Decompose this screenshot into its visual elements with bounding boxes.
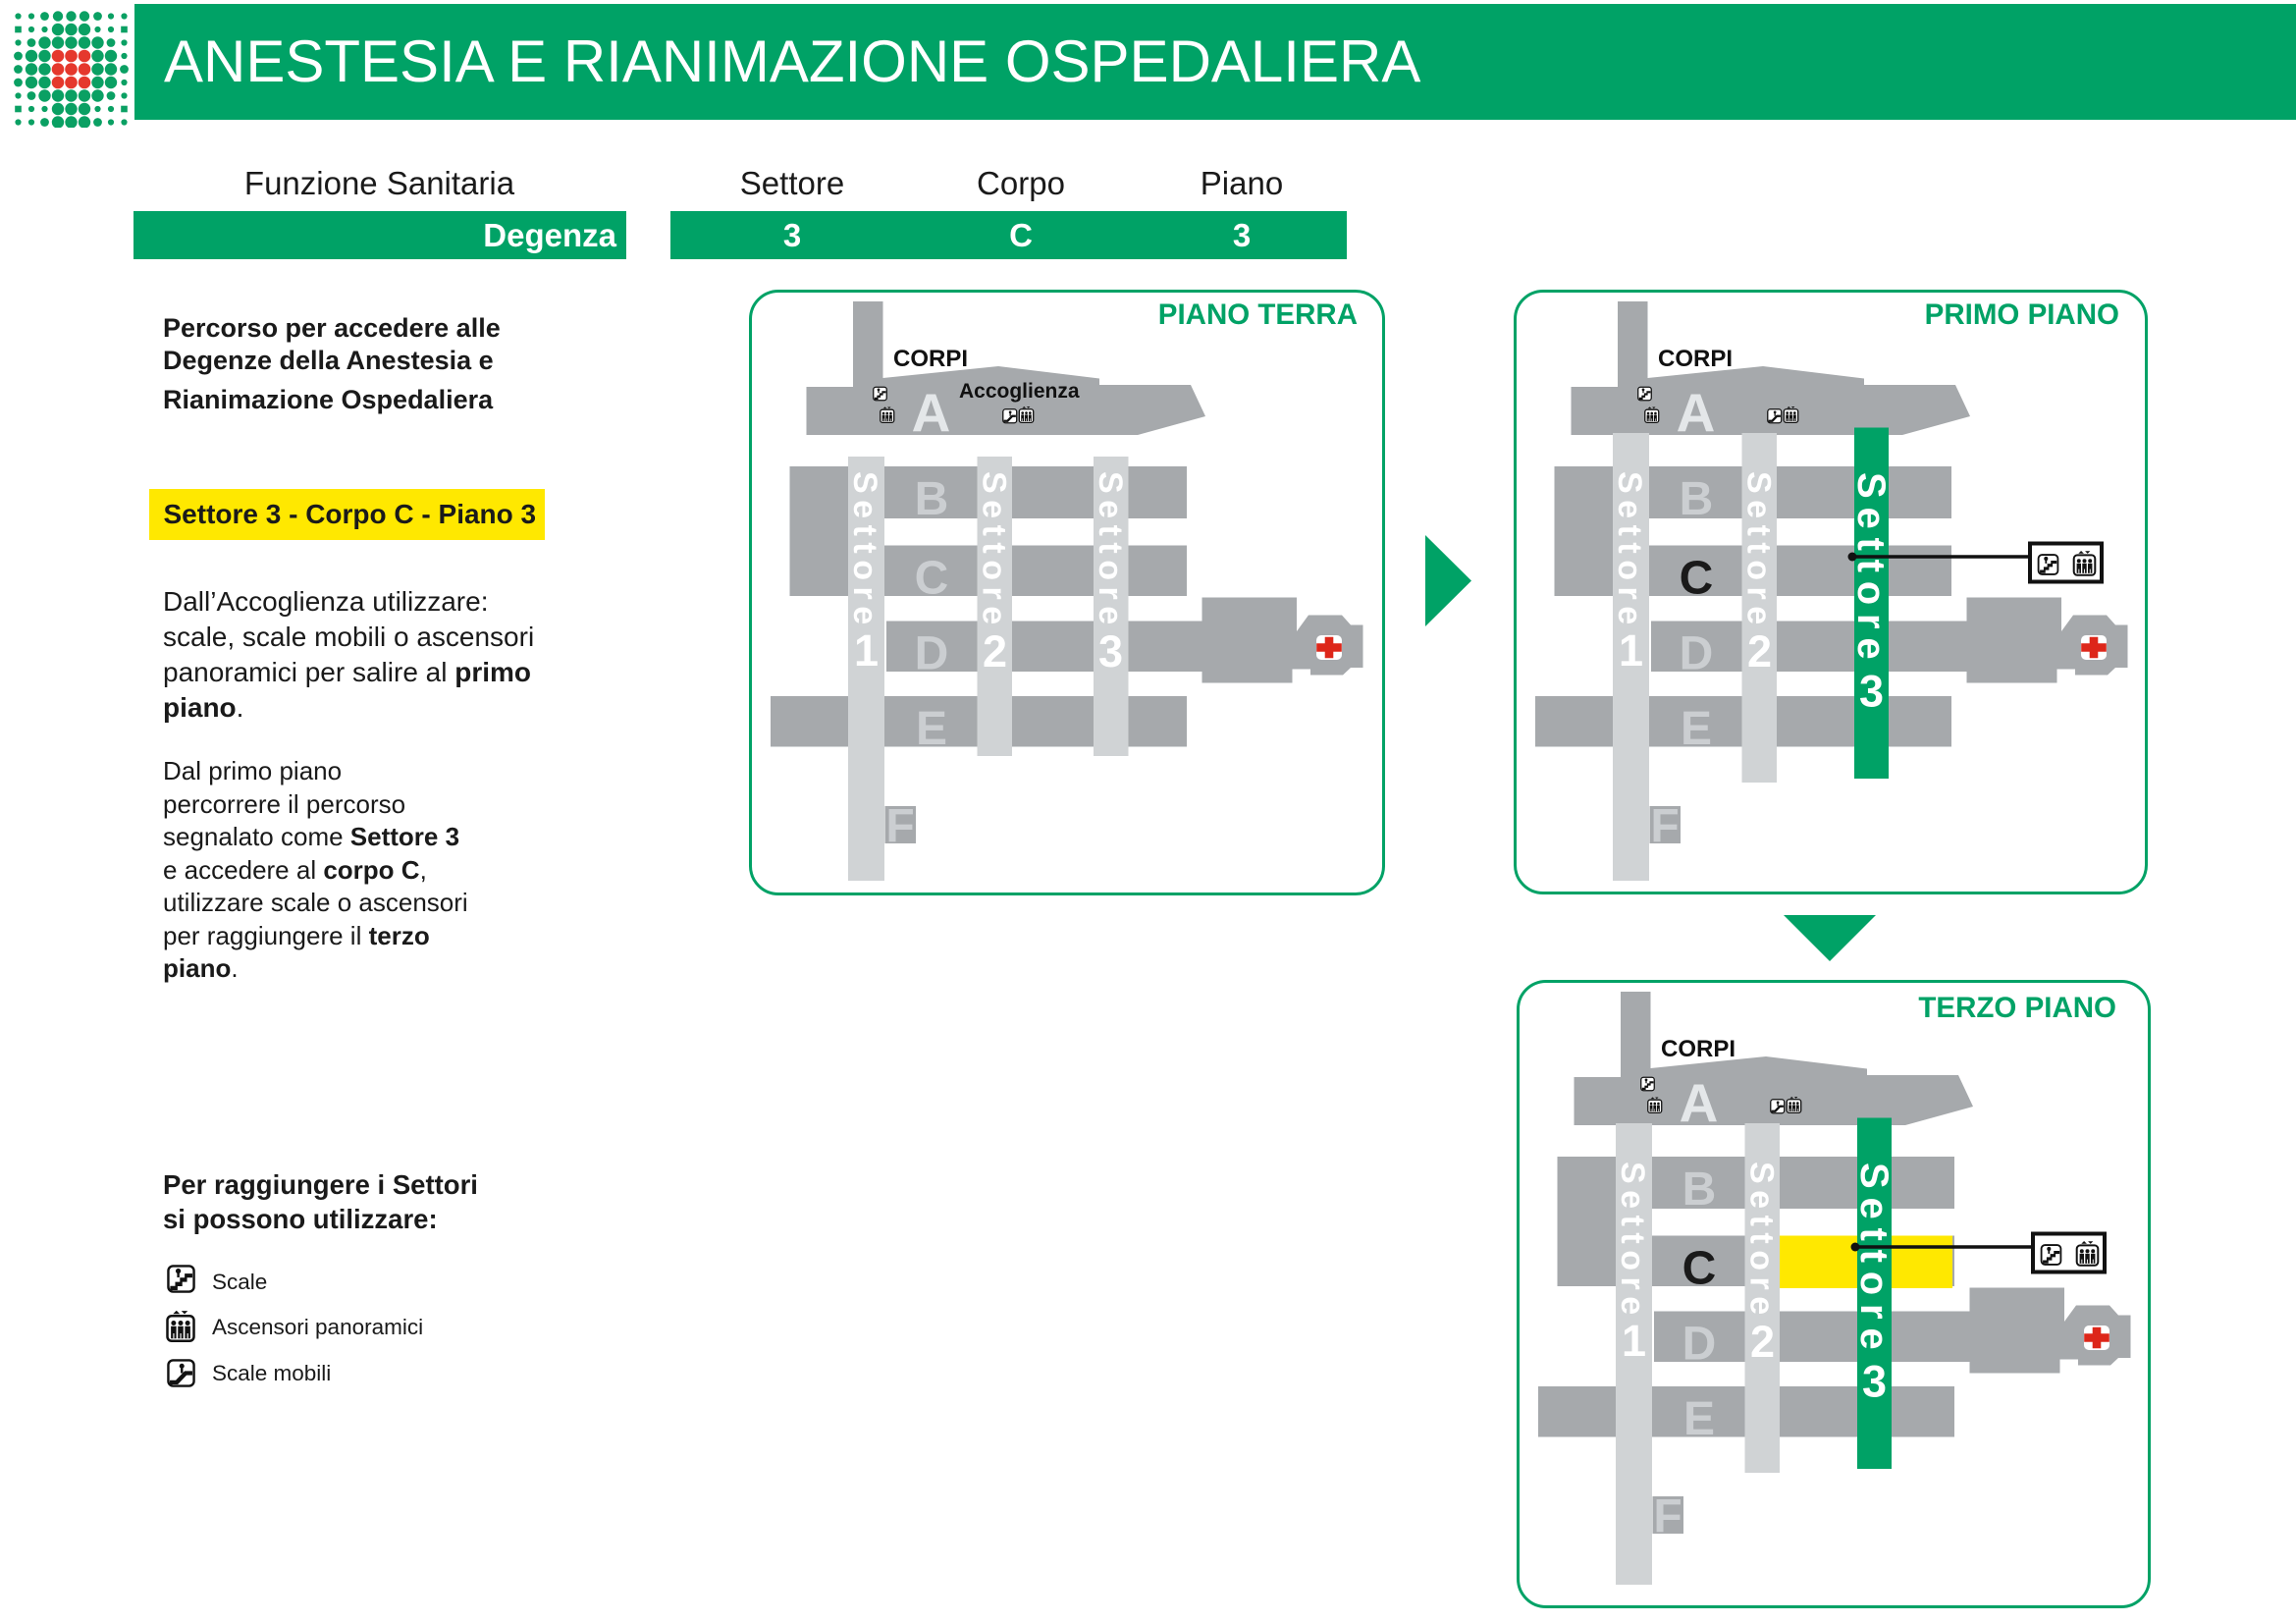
svg-text:Settore: Settore <box>1092 471 1129 631</box>
svg-text:C: C <box>915 553 949 605</box>
svg-text:3: 3 <box>1098 626 1123 676</box>
svg-text:Accoglienza: Accoglienza <box>959 380 1080 403</box>
